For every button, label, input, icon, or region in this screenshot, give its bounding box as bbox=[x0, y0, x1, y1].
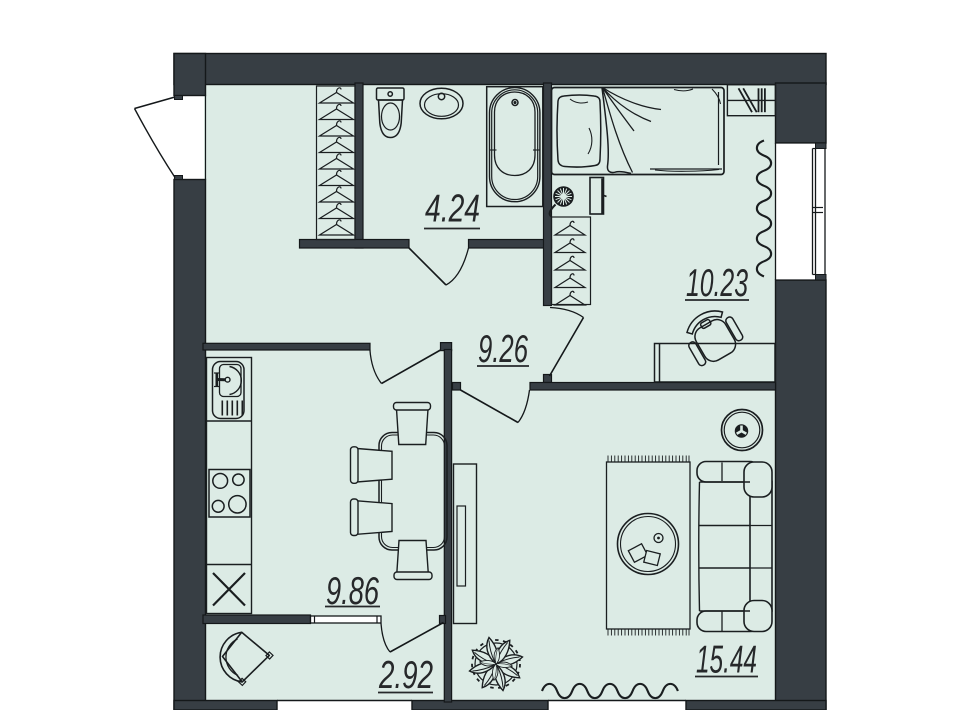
svg-text:15.44: 15.44 bbox=[696, 639, 757, 682]
svg-text:10.23: 10.23 bbox=[686, 262, 748, 305]
svg-text:4.24: 4.24 bbox=[425, 188, 480, 231]
svg-text:9.26: 9.26 bbox=[478, 328, 528, 371]
svg-text:2.92: 2.92 bbox=[378, 654, 433, 697]
